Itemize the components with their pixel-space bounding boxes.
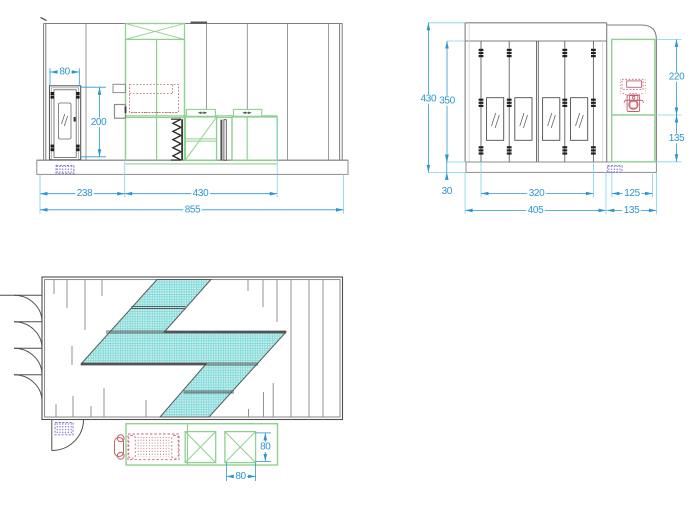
svg-text:200: 200 [91, 117, 107, 128]
svg-text:320: 320 [529, 188, 545, 199]
svg-text:80: 80 [260, 442, 271, 453]
svg-text:220: 220 [669, 72, 685, 83]
svg-text:405: 405 [528, 205, 544, 216]
svg-text:135: 135 [624, 205, 640, 216]
svg-text:30: 30 [442, 186, 453, 197]
svg-text:350: 350 [439, 96, 455, 107]
svg-text:80: 80 [235, 471, 246, 482]
svg-text:430: 430 [421, 94, 437, 105]
svg-text:855: 855 [185, 204, 201, 215]
svg-text:135: 135 [669, 133, 685, 144]
svg-text:238: 238 [77, 188, 93, 199]
svg-text:125: 125 [624, 188, 640, 199]
svg-text:80: 80 [59, 67, 70, 78]
svg-text:430: 430 [193, 188, 209, 199]
